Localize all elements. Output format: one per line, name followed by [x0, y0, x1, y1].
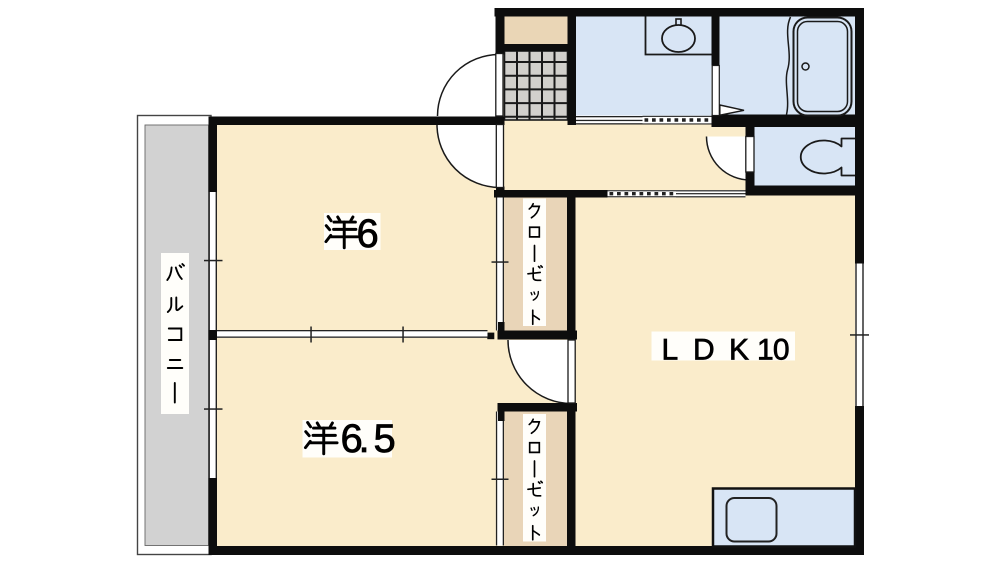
svg-text:6.5: 6.5	[341, 417, 396, 461]
svg-text:6: 6	[357, 212, 379, 256]
